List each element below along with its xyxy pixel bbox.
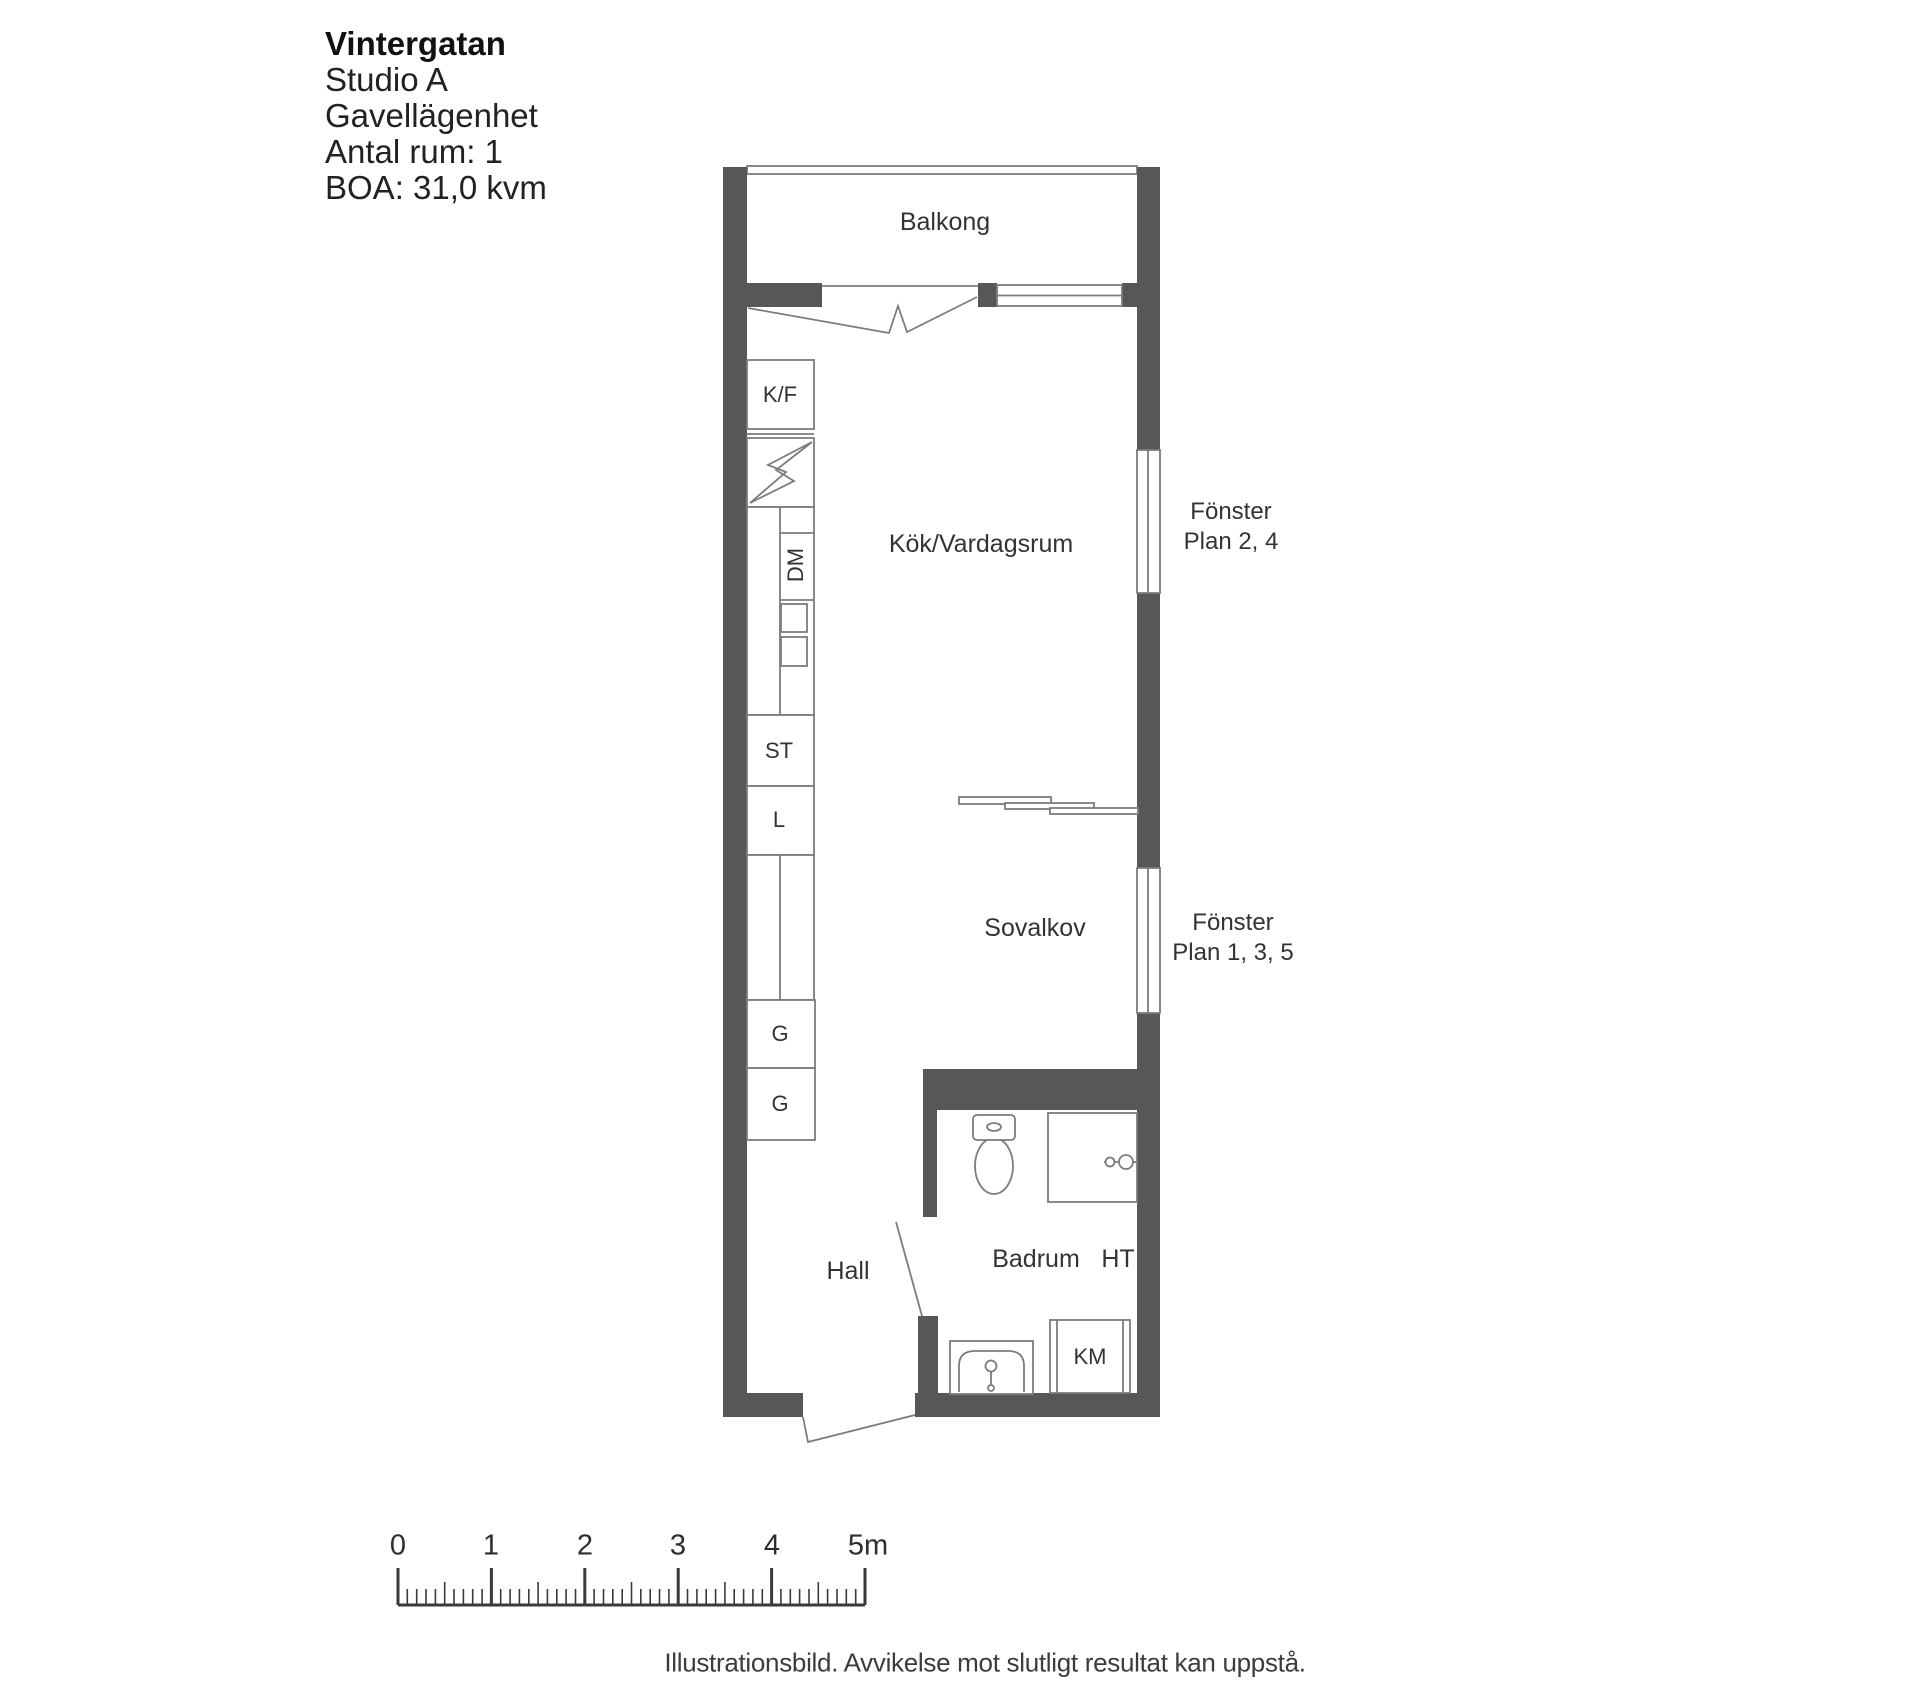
window-note-upper: Fönster Plan 2, 4 bbox=[1184, 497, 1279, 557]
wall-bathroom-top bbox=[923, 1069, 1137, 1110]
wall-bottom-right bbox=[915, 1393, 1137, 1417]
wall-bathroom-left bbox=[923, 1110, 937, 1217]
page-title: Vintergatan bbox=[325, 26, 547, 62]
towel-dryer-knob bbox=[1106, 1158, 1115, 1167]
bathroom-door-leaf bbox=[896, 1222, 922, 1316]
room-label-sleeping-alcove: Sovalkov bbox=[984, 913, 1085, 943]
towel-dryer-ring bbox=[1119, 1155, 1133, 1169]
sink-bowl-1 bbox=[781, 604, 807, 632]
title-line-rooms: Antal rum: 1 bbox=[325, 134, 547, 170]
toilet-flush-button bbox=[987, 1123, 1001, 1131]
room-label-balcony: Balkong bbox=[900, 207, 990, 237]
wall-bathroom-door-jamb bbox=[918, 1316, 938, 1393]
wall-balcony-left-segment bbox=[747, 283, 822, 307]
title-line-type: Gavellägenhet bbox=[325, 98, 547, 134]
title-block: Vintergatan Studio A Gavellägenhet Antal… bbox=[325, 26, 547, 206]
room-label-kitchen-living: Kök/Vardagsrum bbox=[889, 529, 1073, 559]
wall-right-middle bbox=[1137, 593, 1160, 868]
room-label-hall: Hall bbox=[826, 1256, 869, 1286]
wall-balcony-door-window-pier bbox=[978, 283, 997, 307]
scale-label-5m: 5m bbox=[848, 1530, 888, 1563]
fixture-label-linen-cabinet: L bbox=[773, 807, 785, 833]
sink-bowl-2 bbox=[781, 637, 807, 666]
window-note-upper-line2: Plan 2, 4 bbox=[1184, 527, 1279, 557]
wall-left bbox=[723, 167, 747, 1417]
fixture-label-towel-dryer: HT bbox=[1101, 1244, 1134, 1274]
fixture-label-wardrobe-1: G bbox=[771, 1021, 788, 1047]
entrance-door-swing bbox=[803, 1415, 915, 1442]
balcony-railing bbox=[747, 166, 1137, 174]
floorplan-page: Vintergatan Studio A Gavellägenhet Antal… bbox=[0, 0, 1920, 1705]
window-note-lower-line1: Fönster bbox=[1172, 908, 1293, 938]
wall-right-top bbox=[1137, 167, 1160, 450]
scale-ruler-minor-ticks bbox=[407, 1582, 855, 1605]
title-line-area: BOA: 31,0 kvm bbox=[325, 170, 547, 206]
fixture-label-washing-machine: KM bbox=[1074, 1344, 1107, 1370]
washbasin-tap bbox=[986, 1361, 997, 1372]
wall-right-bottom bbox=[1137, 1013, 1160, 1417]
floorplan-drawing bbox=[0, 0, 1920, 1705]
toilet-bowl-icon bbox=[975, 1138, 1013, 1194]
window-note-upper-line1: Fönster bbox=[1184, 497, 1279, 527]
wall-bottom-left bbox=[723, 1393, 803, 1417]
washbasin-drain bbox=[988, 1385, 994, 1391]
fixture-label-fridge-freezer: K/F bbox=[763, 382, 797, 408]
fixture-label-dishwasher: DM bbox=[783, 548, 809, 582]
room-label-bathroom: Badrum bbox=[992, 1244, 1080, 1274]
scale-label-3: 3 bbox=[670, 1530, 686, 1563]
title-line-studio: Studio A bbox=[325, 62, 547, 98]
scale-label-1: 1 bbox=[483, 1530, 499, 1563]
disclaimer-caption: Illustrationsbild. Avvikelse mot slutlig… bbox=[664, 1648, 1305, 1679]
scale-label-0: 0 bbox=[390, 1530, 406, 1563]
fixture-label-wardrobe-2: G bbox=[771, 1091, 788, 1117]
fixture-label-cleaning-cabinet: ST bbox=[765, 738, 793, 764]
wall-balcony-window-end-pier bbox=[1122, 283, 1137, 307]
partition-panel-3 bbox=[1050, 808, 1138, 814]
window-note-lower: Fönster Plan 1, 3, 5 bbox=[1172, 908, 1293, 968]
scale-label-2: 2 bbox=[577, 1530, 593, 1563]
window-note-lower-line2: Plan 1, 3, 5 bbox=[1172, 938, 1293, 968]
scale-label-4: 4 bbox=[764, 1530, 780, 1563]
